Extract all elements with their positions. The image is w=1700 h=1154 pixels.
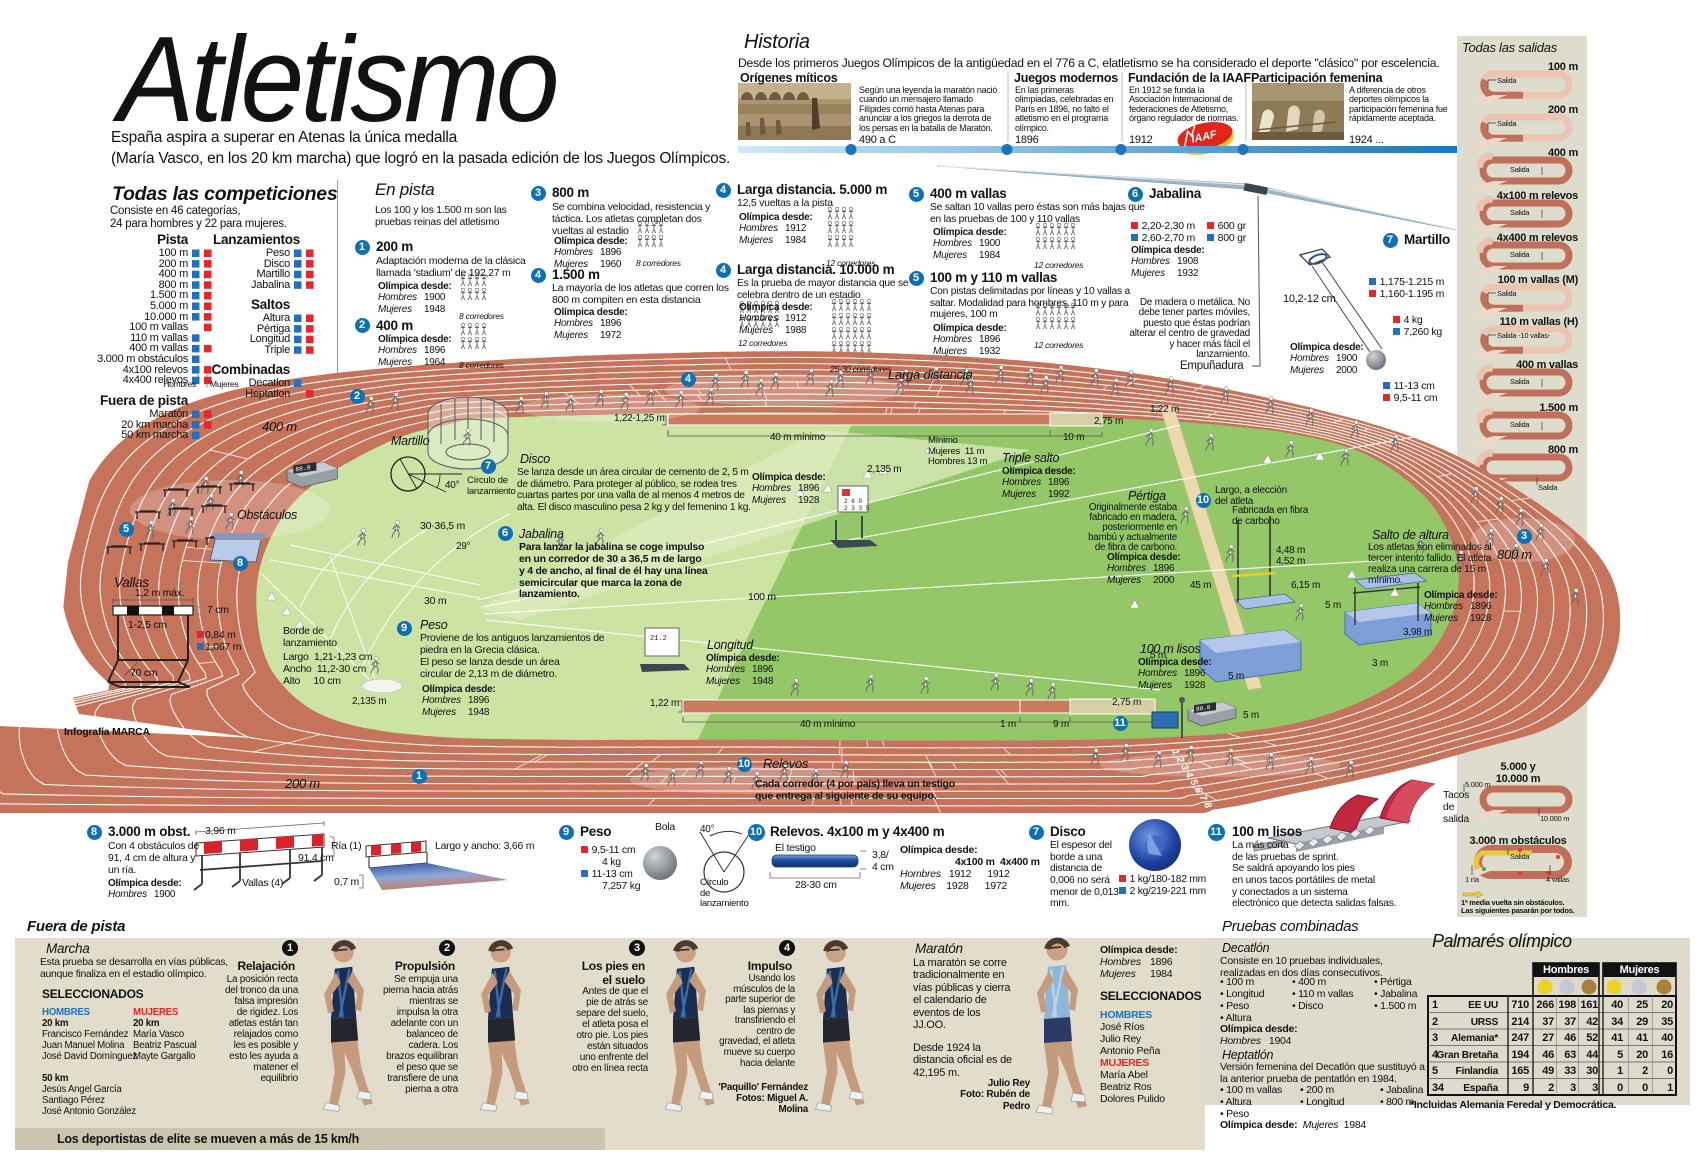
svg-text:2 3 3 5: 2 3 3 5	[844, 505, 870, 512]
svg-text:2 6 0: 2 6 0	[844, 498, 862, 505]
svg-text:21.2: 21.2	[650, 635, 667, 643]
